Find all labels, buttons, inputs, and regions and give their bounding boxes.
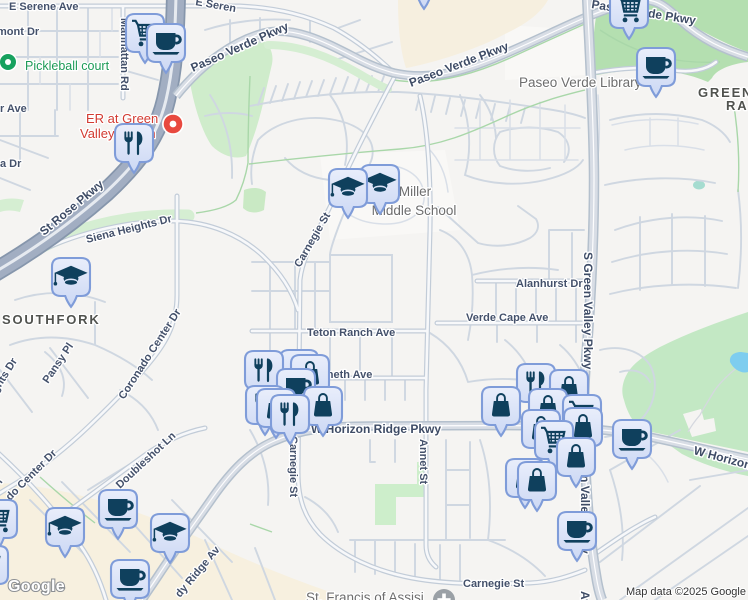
svg-text:r Ave: r Ave — [0, 103, 27, 115]
svg-text:Annet St: Annet St — [417, 439, 429, 485]
svg-text:Alanhurst Dr: Alanhurst Dr — [516, 278, 583, 290]
svg-text:S Green Valley Pkwy: S Green Valley Pkwy — [581, 252, 595, 370]
svg-text:Miller: Miller — [399, 184, 432, 199]
svg-text:RANCH: RANCH — [726, 98, 748, 113]
svg-text:E Serene Ave: E Serene Ave — [9, 1, 79, 13]
svg-text:Google: Google — [8, 578, 65, 595]
svg-text:Pickleball court: Pickleball court — [25, 59, 110, 73]
svg-text:Teton Ranch Ave: Teton Ranch Ave — [307, 327, 395, 339]
svg-text:Carnegie St: Carnegie St — [463, 578, 524, 590]
svg-text:Ave: Ave — [578, 591, 592, 600]
svg-text:a Dr: a Dr — [0, 158, 22, 170]
svg-text:Verde Cape Ave: Verde Cape Ave — [466, 312, 548, 324]
svg-text:mont Dr: mont Dr — [0, 26, 40, 38]
svg-text:Paseo Verde Library: Paseo Verde Library — [519, 75, 642, 90]
svg-text:Map data ©2025 Google: Map data ©2025 Google — [626, 586, 746, 598]
svg-text:St. Francis of Assisi: St. Francis of Assisi — [306, 590, 424, 600]
svg-text:SOUTHFORK: SOUTHFORK — [2, 312, 101, 327]
svg-text:Carnegie St: Carnegie St — [287, 436, 299, 497]
